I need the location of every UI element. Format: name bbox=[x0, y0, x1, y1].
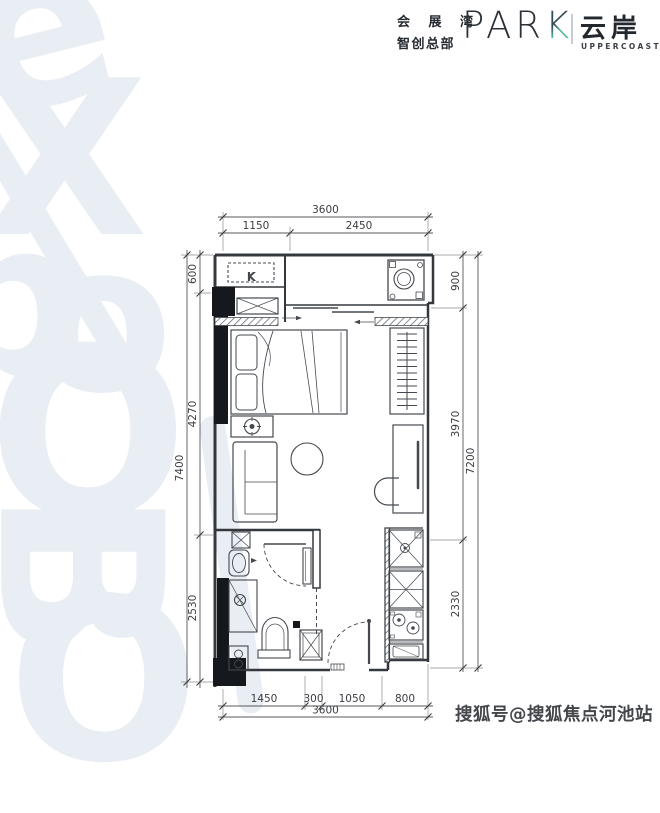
toilet bbox=[258, 618, 290, 659]
dim-top-total: 3600 bbox=[312, 204, 339, 216]
desk bbox=[393, 425, 423, 513]
dim-right-seg2: 3970 bbox=[450, 411, 462, 438]
logo-divider bbox=[571, 14, 573, 44]
dim-left-total: 7400 bbox=[174, 455, 186, 482]
bedroom bbox=[231, 328, 424, 437]
logo-yunan: 云岸 bbox=[580, 8, 642, 45]
floor-plan: 3600 1150 2450 1450 300 1050 800 3600 60… bbox=[0, 0, 660, 735]
dim-bottom-seg3: 1050 bbox=[339, 693, 366, 705]
washing-machine bbox=[388, 260, 424, 300]
entry bbox=[300, 619, 371, 670]
entry-door bbox=[328, 619, 371, 664]
kitchen bbox=[389, 530, 423, 659]
dim-right-seg1: 900 bbox=[450, 271, 462, 291]
brand-header: 会 展 湾 智创总部 PARK 云岸 UPPERCOAST bbox=[0, 0, 660, 60]
insulated-wall-strips bbox=[215, 318, 428, 326]
balcony: K bbox=[215, 260, 428, 326]
dim-bottom-total: 3600 bbox=[312, 705, 339, 717]
dim-bottom-seg1: 1450 bbox=[251, 693, 278, 705]
ac-unit-label: K bbox=[247, 271, 255, 284]
kitchen-base-unit bbox=[389, 644, 423, 659]
kitchen-cabinet-unit bbox=[389, 571, 423, 608]
bathroom bbox=[229, 532, 317, 670]
dim-right-total: 7200 bbox=[465, 448, 477, 475]
bathroom-door bbox=[264, 544, 306, 586]
cabinet-x bbox=[237, 298, 278, 314]
sliding-door bbox=[282, 308, 374, 324]
round-rug bbox=[291, 443, 323, 475]
hall-tv-panel bbox=[303, 548, 311, 584]
dim-left-seg2: 4270 bbox=[187, 401, 199, 428]
wardrobe bbox=[390, 328, 424, 414]
shower-area bbox=[229, 580, 257, 632]
sofa bbox=[233, 442, 277, 522]
dim-bottom-seg4: 800 bbox=[395, 693, 415, 705]
dim-left-seg3: 2530 bbox=[187, 595, 199, 622]
bed bbox=[231, 330, 347, 414]
shoe-cabinet bbox=[300, 630, 322, 660]
logo-park-k: K bbox=[545, 4, 573, 47]
sohu-watermark: 搜狐号@搜狐焦点河池站 bbox=[455, 701, 653, 726]
nightstand bbox=[231, 416, 273, 437]
dim-top-seg1: 1150 bbox=[243, 220, 270, 232]
desk-chair bbox=[375, 478, 400, 505]
dim-left-seg1: 600 bbox=[187, 264, 199, 284]
entry-threshold bbox=[331, 664, 344, 670]
stove bbox=[389, 610, 423, 640]
dim-bottom-seg2: 300 bbox=[303, 693, 323, 705]
kitchen-sink-unit bbox=[389, 530, 423, 567]
dim-right-seg3: 2330 bbox=[450, 591, 462, 618]
logo-uppercoast: UPPERCOAST bbox=[581, 42, 660, 51]
washbasin bbox=[229, 550, 249, 576]
logo-park: PARK bbox=[462, 4, 573, 47]
living-area bbox=[233, 425, 423, 522]
logo-park-par: PAR bbox=[462, 4, 545, 47]
dim-top-seg2: 2450 bbox=[346, 220, 373, 232]
